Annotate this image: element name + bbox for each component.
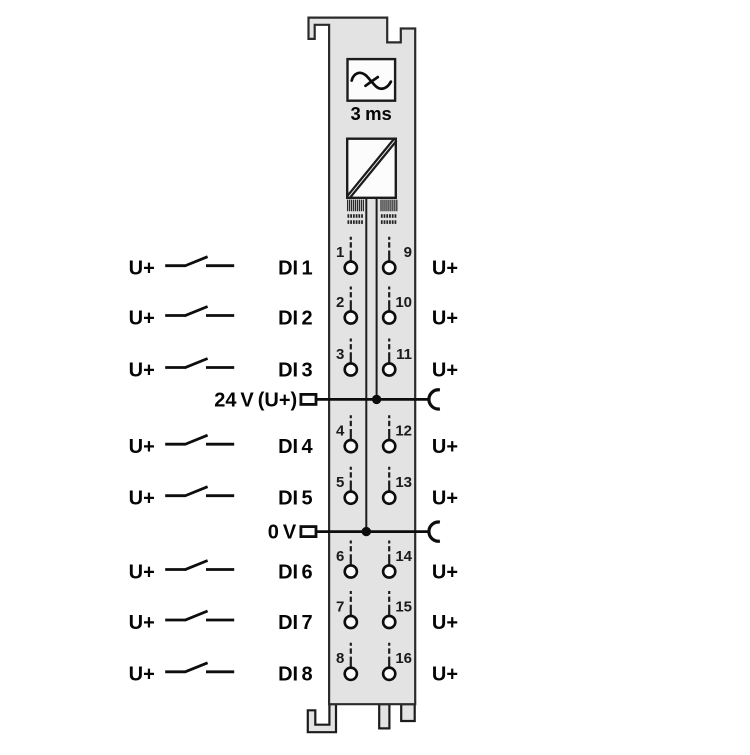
svg-text:2: 2	[336, 294, 344, 311]
svg-text:U+: U+	[432, 258, 458, 280]
svg-text:7: 7	[336, 598, 344, 615]
svg-text:U+: U+	[129, 561, 155, 583]
svg-text:5: 5	[336, 474, 344, 491]
svg-text:DI 4: DI 4	[278, 436, 313, 458]
svg-text:U+: U+	[432, 612, 458, 634]
svg-text:U+: U+	[129, 488, 155, 510]
svg-text:DI 6: DI 6	[278, 561, 312, 583]
svg-text:U+: U+	[129, 436, 155, 458]
svg-text:13: 13	[395, 474, 412, 491]
svg-text:U+: U+	[129, 258, 155, 280]
svg-text:15: 15	[395, 598, 412, 615]
svg-text:DI 8: DI 8	[278, 664, 312, 686]
svg-text:6: 6	[336, 548, 344, 565]
svg-text:8: 8	[336, 650, 344, 667]
svg-text:11: 11	[396, 346, 412, 363]
svg-text:24 V (U+): 24 V (U+)	[214, 389, 297, 411]
svg-text:U+: U+	[432, 307, 458, 329]
svg-text:10: 10	[395, 294, 412, 311]
svg-text:DI 3: DI 3	[278, 359, 312, 381]
svg-text:U+: U+	[432, 436, 458, 458]
svg-text:U+: U+	[432, 561, 458, 583]
svg-text:U+: U+	[129, 307, 155, 329]
svg-text:U+: U+	[432, 664, 458, 686]
svg-text:14: 14	[395, 548, 412, 565]
svg-text:U+: U+	[432, 359, 458, 381]
svg-text:4: 4	[336, 423, 345, 440]
svg-text:DI 1: DI 1	[278, 258, 312, 280]
svg-text:U+: U+	[432, 488, 458, 510]
svg-text:3 ms: 3 ms	[351, 103, 392, 124]
svg-text:U+: U+	[129, 664, 155, 686]
svg-text:DI 2: DI 2	[278, 307, 312, 329]
svg-text:DI 5: DI 5	[278, 488, 312, 510]
svg-text:12: 12	[395, 423, 412, 440]
svg-text:16: 16	[395, 650, 412, 667]
svg-text:U+: U+	[129, 612, 155, 634]
svg-text:9: 9	[404, 244, 412, 261]
svg-text:DI 7: DI 7	[278, 612, 312, 634]
svg-text:1: 1	[336, 244, 344, 261]
svg-text:U+: U+	[129, 359, 155, 381]
svg-text:0 V: 0 V	[268, 522, 297, 544]
svg-text:3: 3	[336, 346, 344, 363]
